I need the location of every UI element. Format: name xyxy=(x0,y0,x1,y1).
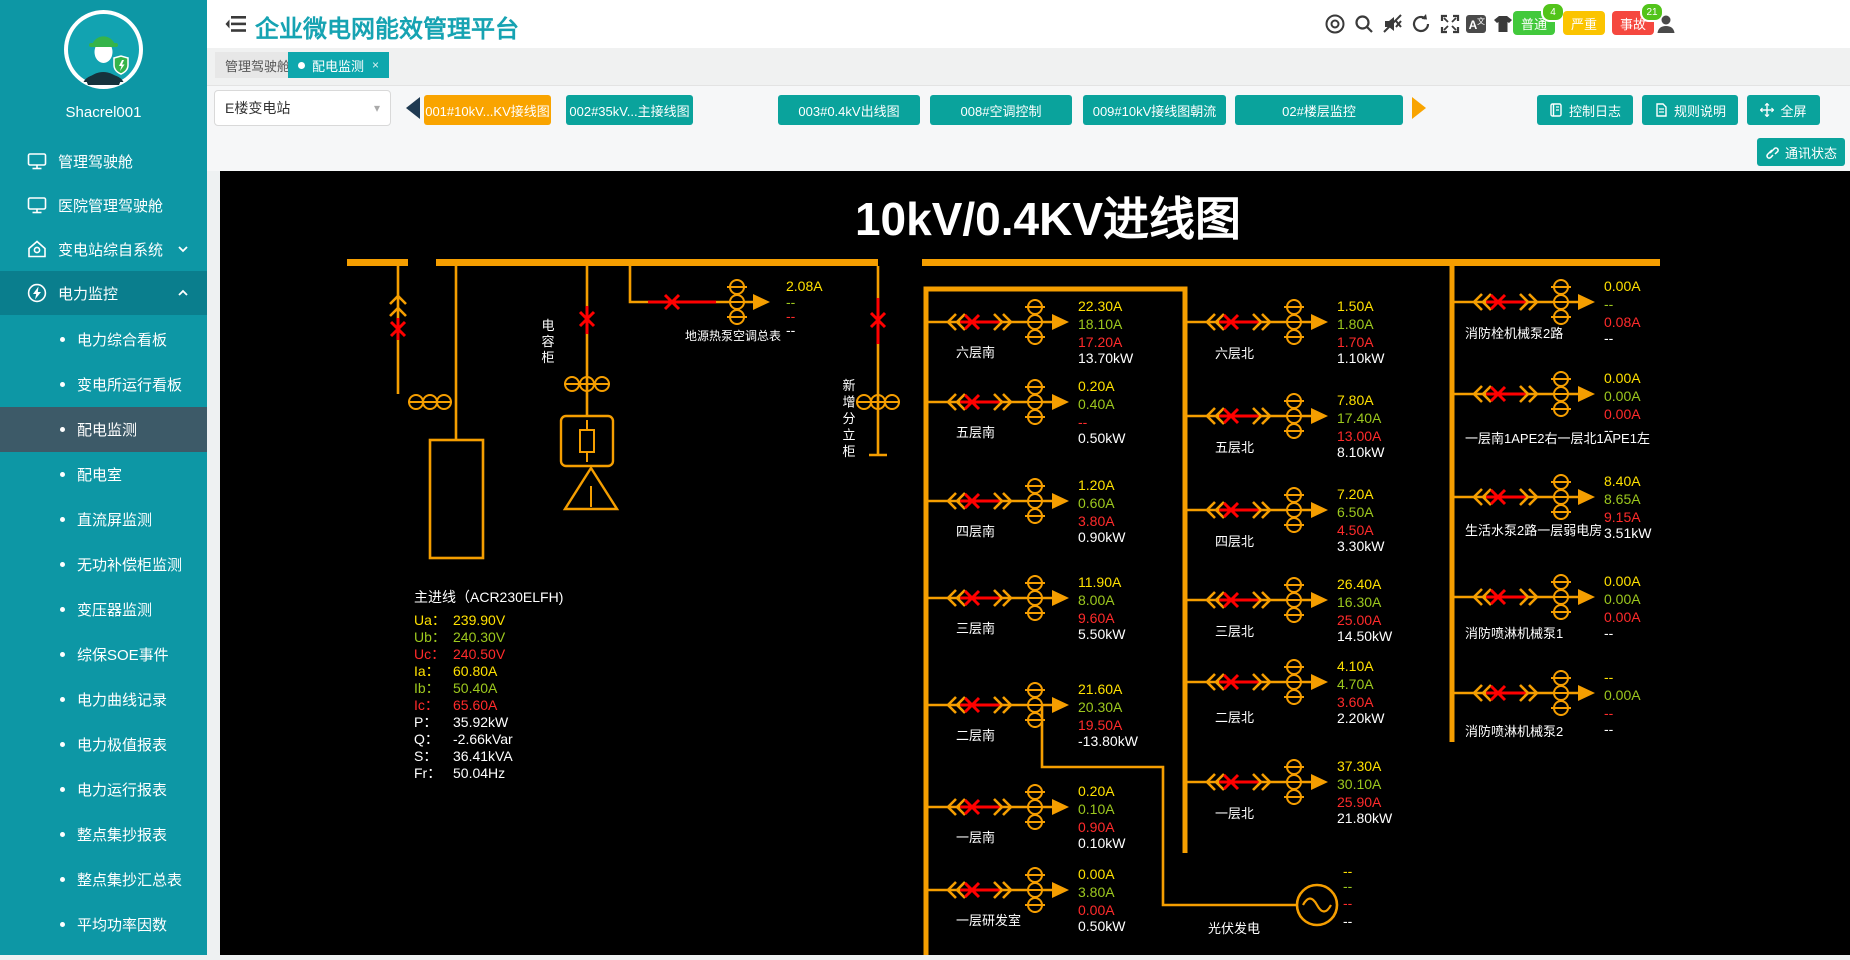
sidebar-subitem-3[interactable]: 配电室 xyxy=(0,452,207,497)
main-meter-row-value: -2.66kVar xyxy=(453,731,513,747)
main-meter-row-label: P： xyxy=(414,714,437,730)
branch-value: -- xyxy=(1604,625,1614,641)
branch-label: 二层南 xyxy=(956,728,995,743)
pv-value: -- xyxy=(1343,863,1353,879)
alarm-normal-button[interactable]: 普通 4 xyxy=(1513,11,1555,35)
link-icon xyxy=(1765,145,1779,159)
sidebar-item-label: 电力监控 xyxy=(58,283,118,304)
branch-label: 一层南 xyxy=(956,830,995,845)
chevron-down-icon: ▾ xyxy=(374,101,380,115)
branch-value: 25.00A xyxy=(1337,612,1382,628)
sidebar-subitem-label: 直流屏监测 xyxy=(77,509,152,530)
sidebar-subitem-label: 变压器监测 xyxy=(77,599,152,620)
branch-value: 3.51kW xyxy=(1604,525,1652,541)
bullet-icon xyxy=(60,472,65,477)
branch-label: 三层北 xyxy=(1215,624,1254,639)
main-meter-row-value: 239.90V xyxy=(453,612,506,628)
branch-value: 0.00A xyxy=(1604,591,1641,607)
main-meter-row-value: 36.41kVA xyxy=(453,748,513,764)
branch-value: 18.10A xyxy=(1078,316,1123,332)
bullet-icon xyxy=(60,427,65,432)
sidebar-item-label: 变电站综自系统 xyxy=(58,239,163,260)
sidebar-subitem-13[interactable]: 平均功率因数 xyxy=(0,902,207,947)
heat-pump-value: 2.08A xyxy=(786,278,823,294)
sidebar-subitem-label: 电力曲线记录 xyxy=(77,689,167,710)
main-meter-row-label: Ia： xyxy=(414,663,440,679)
tab-active-dot xyxy=(298,62,305,69)
rules-button[interactable]: 规则说明 xyxy=(1642,95,1738,125)
branch-value: 0.00A xyxy=(1078,866,1115,882)
branch-value: -- xyxy=(1078,414,1088,430)
bullet-icon xyxy=(60,652,65,657)
alarm-severe-button[interactable]: 严重 xyxy=(1563,11,1605,35)
sidebar-item-1[interactable]: 医院管理驾驶舱 xyxy=(0,183,207,227)
comm-status-button[interactable]: 通讯状态 xyxy=(1757,138,1845,166)
branch-value: 1.10kW xyxy=(1337,350,1385,366)
app-title: 企业微电网能效管理平台 xyxy=(255,9,519,44)
branch-value: 14.50kW xyxy=(1337,628,1393,644)
diagram-tab-label: 008#空调控制 xyxy=(961,101,1042,120)
pv-value: -- xyxy=(1343,895,1353,911)
tab-close-icon[interactable]: × xyxy=(372,58,379,72)
vertical-label: 立 xyxy=(842,428,855,443)
sidebar-subitem-label: 变电所运行看板 xyxy=(77,374,182,395)
branch-value: 0.20A xyxy=(1078,783,1115,799)
fullscreen-icon[interactable] xyxy=(1439,13,1461,35)
branch-value: -- xyxy=(1604,422,1614,438)
diagram-tab-3[interactable]: 008#空调控制 xyxy=(930,95,1072,125)
main-meter-row-label: Ic： xyxy=(414,697,439,713)
station-select[interactable]: E楼变电站 ▾ xyxy=(214,90,391,126)
branch-value: 0.50kW xyxy=(1078,430,1126,446)
sidebar-subitem-label: 配电监测 xyxy=(77,419,137,440)
branch-value: 2.20kW xyxy=(1337,710,1385,726)
main-meter-row-label: Ub： xyxy=(414,629,446,645)
pv-value: -- xyxy=(1343,878,1353,894)
main-meter-row-value: 240.30V xyxy=(453,629,506,645)
branch-value: 37.30A xyxy=(1337,758,1382,774)
sidebar-subitem-2[interactable]: 配电监测 xyxy=(0,407,207,452)
branch-value: 16.30A xyxy=(1337,594,1382,610)
diagram-canvas: 10kV/0.4KV进线图电容柜地源热泵空调总表2.08A------新增分立柜… xyxy=(220,171,1850,955)
diagram-tab-2[interactable]: 003#0.4kV出线图 xyxy=(778,95,920,125)
main-meter-row-value: 35.92kW xyxy=(453,714,509,730)
branch-value: 0.00A xyxy=(1604,370,1641,386)
sidebar-subitem-label: 电力极值报表 xyxy=(77,734,167,755)
svg-text:文: 文 xyxy=(1477,16,1485,26)
bullet-icon xyxy=(60,337,65,342)
log-book-icon xyxy=(1549,103,1563,117)
branch-value: 0.10A xyxy=(1078,801,1115,817)
branch-value: 1.20A xyxy=(1078,477,1115,493)
header: 企业微电网能效管理平台 A文 普通 4 严重 事故 21 xyxy=(207,0,1850,48)
pv-value: -- xyxy=(1343,913,1353,929)
diagram-title: 10kV/0.4KV进线图 xyxy=(855,193,1241,245)
branch-value: 0.00A xyxy=(1604,573,1641,589)
avatar[interactable] xyxy=(64,10,143,89)
branch-label: 三层南 xyxy=(956,621,995,636)
sidebar-subitem-8[interactable]: 电力曲线记录 xyxy=(0,677,207,722)
alarm-normal-badge: 4 xyxy=(1541,2,1565,22)
main-meter-row-label: Ua： xyxy=(414,612,446,628)
branch-value: 0.20A xyxy=(1078,378,1115,394)
bullet-icon xyxy=(60,877,65,882)
branch-label: 消防喷淋机械泵1 xyxy=(1465,626,1563,641)
sound-muted-icon[interactable] xyxy=(1382,13,1404,35)
branch-label: 六层南 xyxy=(956,345,995,360)
vertical-label: 分 xyxy=(842,411,855,426)
pv-label: 光伏发电 xyxy=(1208,921,1260,936)
bullet-icon xyxy=(60,562,65,567)
branch-value: 7.20A xyxy=(1337,486,1374,502)
rules-label: 规则说明 xyxy=(1674,101,1726,120)
main-meter-row-label: Uc： xyxy=(414,646,445,662)
toolbar: E楼变电站 ▾ 001#10kV...KV接线图002#35kV...主接线图0… xyxy=(207,86,1850,171)
heat-pump-label: 地源热泵空调总表 xyxy=(685,329,781,343)
sidebar-subitem-11[interactable]: 整点集抄报表 xyxy=(0,812,207,857)
sidebar-subitem-label: 平均功率因数 xyxy=(77,914,167,935)
branch-label: 五层北 xyxy=(1215,440,1254,455)
branch-value: 0.00A xyxy=(1078,902,1115,918)
branch-value: 1.50A xyxy=(1337,298,1374,314)
branch-value: 13.00A xyxy=(1337,428,1382,444)
sidebar: Shacrel001 管理驾驶舱医院管理驾驶舱变电站综自系统电力监控 电力综合看… xyxy=(0,0,207,955)
single-line-diagram: 10kV/0.4KV进线图电容柜地源热泵空调总表2.08A------新增分立柜… xyxy=(220,171,1850,955)
diagram-tab-label: 003#0.4kV出线图 xyxy=(798,101,899,120)
bullet-icon xyxy=(60,697,65,702)
branch-value: 3.30kW xyxy=(1337,538,1385,554)
branch-value: 0.40A xyxy=(1078,396,1115,412)
branch-value: -- xyxy=(1604,330,1614,346)
diagram-tab-label: 002#35kV...主接线图 xyxy=(569,101,689,120)
branch-value: 1.70A xyxy=(1337,334,1374,350)
refresh-icon[interactable] xyxy=(1410,13,1432,35)
diagram-tab-4[interactable]: 009#10kV接线图朝流 xyxy=(1083,95,1226,125)
branch-value: 20.30A xyxy=(1078,699,1123,715)
page-tab-label: 配电监测 xyxy=(312,56,364,75)
control-log-button[interactable]: 控制日志 xyxy=(1537,95,1633,125)
username: Shacrel001 xyxy=(0,104,207,121)
branch-value: 0.90A xyxy=(1078,819,1115,835)
branch-label: 四层北 xyxy=(1215,534,1254,549)
sidebar-subitem-label: 整点集抄报表 xyxy=(77,824,167,845)
branch-value: 8.40A xyxy=(1604,473,1641,489)
monitor-icon xyxy=(27,195,47,215)
branch-value: 0.90kW xyxy=(1078,529,1126,545)
branch-value: 8.10kW xyxy=(1337,444,1385,460)
bullet-icon xyxy=(60,787,65,792)
branch-value: 6.50A xyxy=(1337,504,1374,520)
alarm-severe-label: 严重 xyxy=(1571,14,1597,33)
sidebar-subitem-12[interactable]: 整点集抄汇总表 xyxy=(0,857,207,902)
sidebar-subitem-0[interactable]: 电力综合看板 xyxy=(0,317,207,362)
sidebar-subitem-label: 配电室 xyxy=(77,464,122,485)
sidebar-subitem-9[interactable]: 电力极值报表 xyxy=(0,722,207,767)
page-tab-distribution[interactable]: 配电监测 × xyxy=(288,52,389,78)
app-root: { "sidebar": { "username": "Shacrel001",… xyxy=(0,0,1850,955)
branch-value: 0.00A xyxy=(1604,609,1641,625)
branch-value: 26.40A xyxy=(1337,576,1382,592)
theme-skin-icon[interactable] xyxy=(1492,13,1514,35)
branch-value: -- xyxy=(1604,669,1614,685)
diagram-tab-label: 009#10kV接线图朝流 xyxy=(1093,101,1217,120)
branch-value: 0.00A xyxy=(1604,278,1641,294)
branch-value: 3.60A xyxy=(1337,694,1374,710)
branch-value: 13.70kW xyxy=(1078,350,1134,366)
branch-value: 19.50A xyxy=(1078,717,1123,733)
main-meter-row-value: 50.04Hz xyxy=(453,765,505,781)
branch-value: 25.90A xyxy=(1337,794,1382,810)
branch-value: 9.60A xyxy=(1078,610,1115,626)
branch-value: 4.50A xyxy=(1337,522,1374,538)
branch-label: 五层南 xyxy=(956,425,995,440)
diagram-tab-label: 001#10kV...KV接线图 xyxy=(425,101,550,120)
sidebar-menu: 管理驾驶舱医院管理驾驶舱变电站综自系统电力监控 xyxy=(0,139,207,315)
branch-value: 5.50kW xyxy=(1078,626,1126,642)
branch-value: 0.60A xyxy=(1078,495,1115,511)
sidebar-subitem-label: 无功补偿柜监测 xyxy=(77,554,182,575)
chevron-down-icon xyxy=(177,242,189,254)
main-meter-name: 主进线（ACR230ELFH) xyxy=(414,589,563,605)
sidebar-submenu: 电力综合看板变电所运行看板配电监测配电室直流屏监测无功补偿柜监测变压器监测综保S… xyxy=(0,317,207,947)
chevron-up-icon xyxy=(177,286,189,298)
sidebar-subitem-label: 电力运行报表 xyxy=(77,779,167,800)
station-select-value: E楼变电站 xyxy=(225,98,290,118)
main-meter-row-value: 50.40A xyxy=(453,680,498,696)
branch-label: 一层南1APE2右一层北1APE1左 xyxy=(1465,431,1650,446)
branch-label: 二层北 xyxy=(1215,710,1254,725)
monitor-icon xyxy=(27,151,47,171)
branch-value: 0.10kW xyxy=(1078,835,1126,851)
bullet-icon xyxy=(60,742,65,747)
sidebar-item-3[interactable]: 电力监控 xyxy=(0,271,207,315)
diagram-tab-5[interactable]: 02#楼层监控 xyxy=(1235,95,1403,125)
branch-value: -- xyxy=(1604,296,1614,312)
page-tabstrip: 管理驾驶舱 配电监测 × xyxy=(207,48,1850,86)
sidebar-item-2[interactable]: 变电站综自系统 xyxy=(0,227,207,271)
branch-value: 4.10A xyxy=(1337,658,1374,674)
tabs-scroll-left-icon[interactable] xyxy=(406,97,420,119)
tabs-scroll-right-icon[interactable] xyxy=(1412,97,1426,119)
bullet-icon xyxy=(60,607,65,612)
branch-value: 0.50kW xyxy=(1078,918,1126,934)
branch-value: 3.80A xyxy=(1078,884,1115,900)
branch-value: 17.20A xyxy=(1078,334,1123,350)
sidebar-subitem-4[interactable]: 直流屏监测 xyxy=(0,497,207,542)
fullscreen-label: 全屏 xyxy=(1780,101,1806,120)
branch-value: 17.40A xyxy=(1337,410,1382,426)
search-icon[interactable] xyxy=(1353,13,1375,35)
branch-label: 一层北 xyxy=(1215,806,1254,821)
branch-value: -13.80kW xyxy=(1078,733,1139,749)
sidebar-collapse-icon[interactable] xyxy=(225,14,247,34)
fullscreen-button[interactable]: 全屏 xyxy=(1747,95,1820,125)
bullet-icon xyxy=(60,382,65,387)
diagram-tab-label: 02#楼层监控 xyxy=(1282,101,1356,120)
sidebar-subitem-5[interactable]: 无功补偿柜监测 xyxy=(0,542,207,587)
branch-label: 生活水泵2路一层弱电房 xyxy=(1465,523,1602,538)
page-tab-label: 管理驾驶舱 xyxy=(225,56,290,75)
diagram-tab-1[interactable]: 002#35kV...主接线图 xyxy=(566,95,693,125)
vertical-label: 柜 xyxy=(541,350,554,365)
sidebar-item-label: 医院管理驾驶舱 xyxy=(58,195,163,216)
bullet-icon xyxy=(60,517,65,522)
sidebar-subitem-label: 整点集抄汇总表 xyxy=(77,869,182,890)
main-meter-row-label: Q： xyxy=(414,731,439,747)
sidebar-subitem-7[interactable]: 综保SOE事件 xyxy=(0,632,207,677)
branch-value: 30.10A xyxy=(1337,776,1382,792)
branch-value: 4.70A xyxy=(1337,676,1374,692)
branch-value: 0.00A xyxy=(1604,406,1641,422)
main-meter-row-label: Fr： xyxy=(414,765,441,781)
home-icon xyxy=(27,239,47,259)
branch-value: 21.60A xyxy=(1078,681,1123,697)
move-fullscreen-icon xyxy=(1760,103,1774,117)
branch-value: -- xyxy=(1604,721,1614,737)
alarm-accident-button[interactable]: 事故 21 xyxy=(1612,11,1654,35)
vertical-label: 容 xyxy=(541,334,554,349)
vertical-label: 电 xyxy=(541,318,554,333)
branch-value: 0.00A xyxy=(1604,687,1641,703)
sidebar-item-label: 管理驾驶舱 xyxy=(58,151,133,172)
branch-value: 7.80A xyxy=(1337,392,1374,408)
translate-icon[interactable]: A文 xyxy=(1465,13,1487,35)
main-meter-row-value: 60.80A xyxy=(453,663,498,679)
branch-value: 11.90A xyxy=(1078,574,1122,590)
branch-value: 22.30A xyxy=(1078,298,1123,314)
help-circle-icon[interactable] xyxy=(1324,13,1346,35)
branch-value: -- xyxy=(1604,705,1614,721)
avatar-engineer-icon xyxy=(68,14,139,85)
branch-label: 消防栓机械泵2路 xyxy=(1465,326,1563,341)
diagram-tab-0[interactable]: 001#10kV...KV接线图 xyxy=(424,95,551,125)
sidebar-item-0[interactable]: 管理驾驶舱 xyxy=(0,139,207,183)
branch-value: 21.80kW xyxy=(1337,810,1393,826)
branch-value: 0.08A xyxy=(1604,314,1641,330)
comm-status-label: 通讯状态 xyxy=(1785,143,1837,162)
sidebar-subitem-label: 电力综合看板 xyxy=(77,329,167,350)
main-meter-row-label: S： xyxy=(414,748,437,764)
branch-label: 四层南 xyxy=(956,524,995,539)
sidebar-subitem-6[interactable]: 变压器监测 xyxy=(0,587,207,632)
sidebar-subitem-1[interactable]: 变电所运行看板 xyxy=(0,362,207,407)
branch-label: 消防喷淋机械泵2 xyxy=(1465,724,1563,739)
sidebar-subitem-label: 综保SOE事件 xyxy=(77,644,169,665)
vertical-label: 柜 xyxy=(842,444,855,459)
branch-label: 一层研发室 xyxy=(956,913,1021,928)
power-icon xyxy=(27,283,47,303)
branch-value: 9.15A xyxy=(1604,509,1641,525)
vertical-label: 增 xyxy=(842,395,855,410)
heat-pump-value: -- xyxy=(786,322,796,338)
branch-label: 六层北 xyxy=(1215,346,1254,361)
branch-value: 0.00A xyxy=(1604,388,1641,404)
branch-value: 1.80A xyxy=(1337,316,1374,332)
vertical-label: 新 xyxy=(842,378,855,393)
main-meter-row-label: Ib： xyxy=(414,680,440,696)
main-meter-row-value: 240.50V xyxy=(453,646,506,662)
branch-value: 3.80A xyxy=(1078,513,1115,529)
sidebar-subitem-10[interactable]: 电力运行报表 xyxy=(0,767,207,812)
document-icon xyxy=(1654,103,1668,117)
user-icon[interactable] xyxy=(1655,13,1677,35)
branch-value: 8.65A xyxy=(1604,491,1641,507)
bullet-icon xyxy=(60,832,65,837)
control-log-label: 控制日志 xyxy=(1569,101,1621,120)
branch-value: 8.00A xyxy=(1078,592,1115,608)
main-meter-row-value: 65.60A xyxy=(453,697,498,713)
bullet-icon xyxy=(60,922,65,927)
